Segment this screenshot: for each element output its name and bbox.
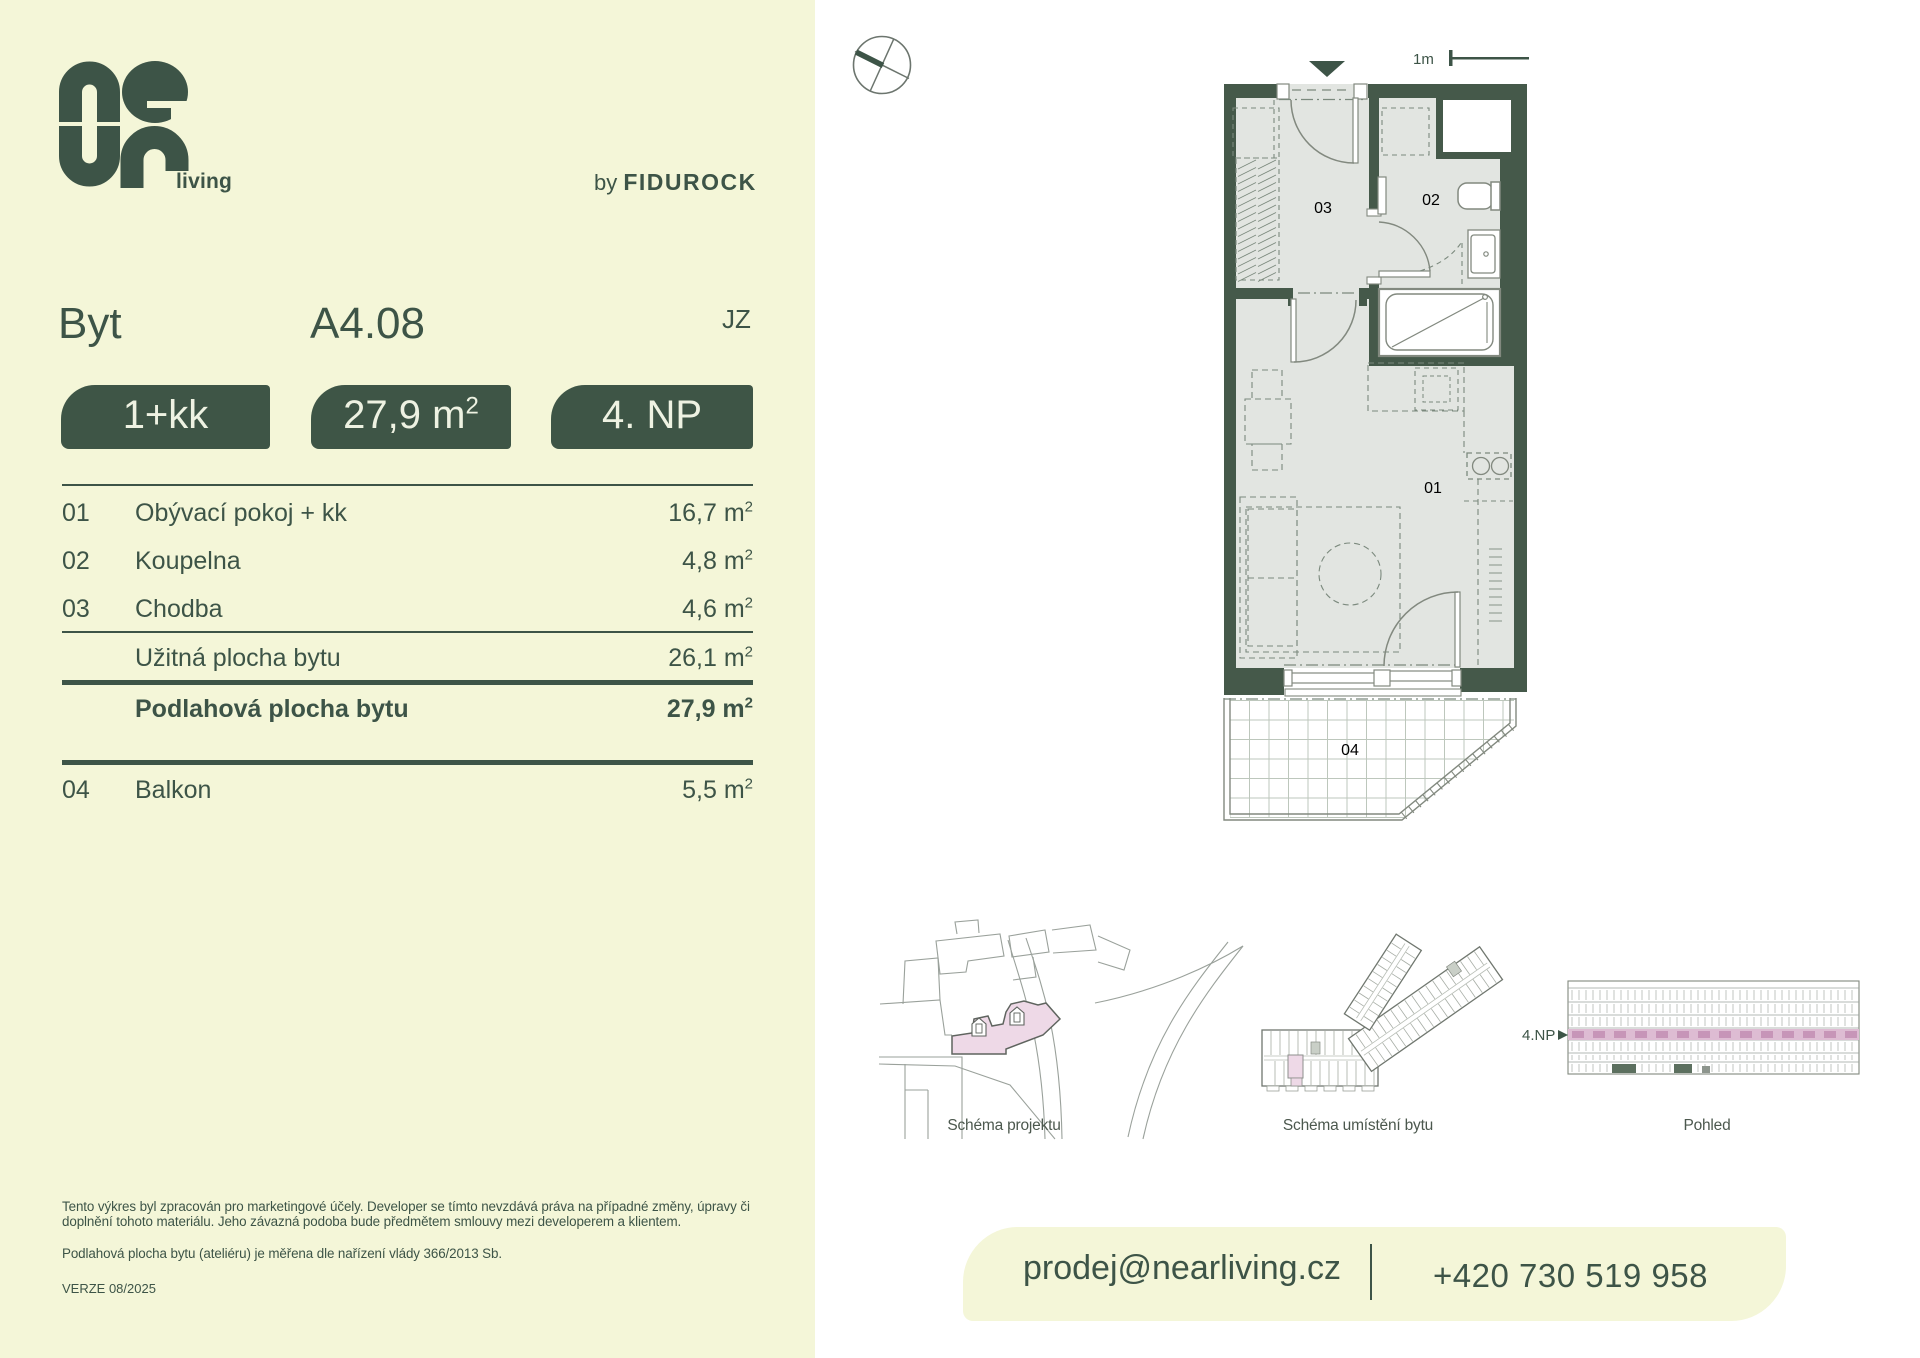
svg-text:02: 02 bbox=[1422, 192, 1440, 209]
svg-text:03: 03 bbox=[1314, 200, 1332, 217]
svg-text:4.NP: 4.NP bbox=[1522, 1027, 1555, 1044]
svg-text:01: 01 bbox=[1424, 480, 1442, 497]
svg-text:1m: 1m bbox=[1413, 51, 1434, 68]
svg-text:04: 04 bbox=[1341, 742, 1359, 759]
